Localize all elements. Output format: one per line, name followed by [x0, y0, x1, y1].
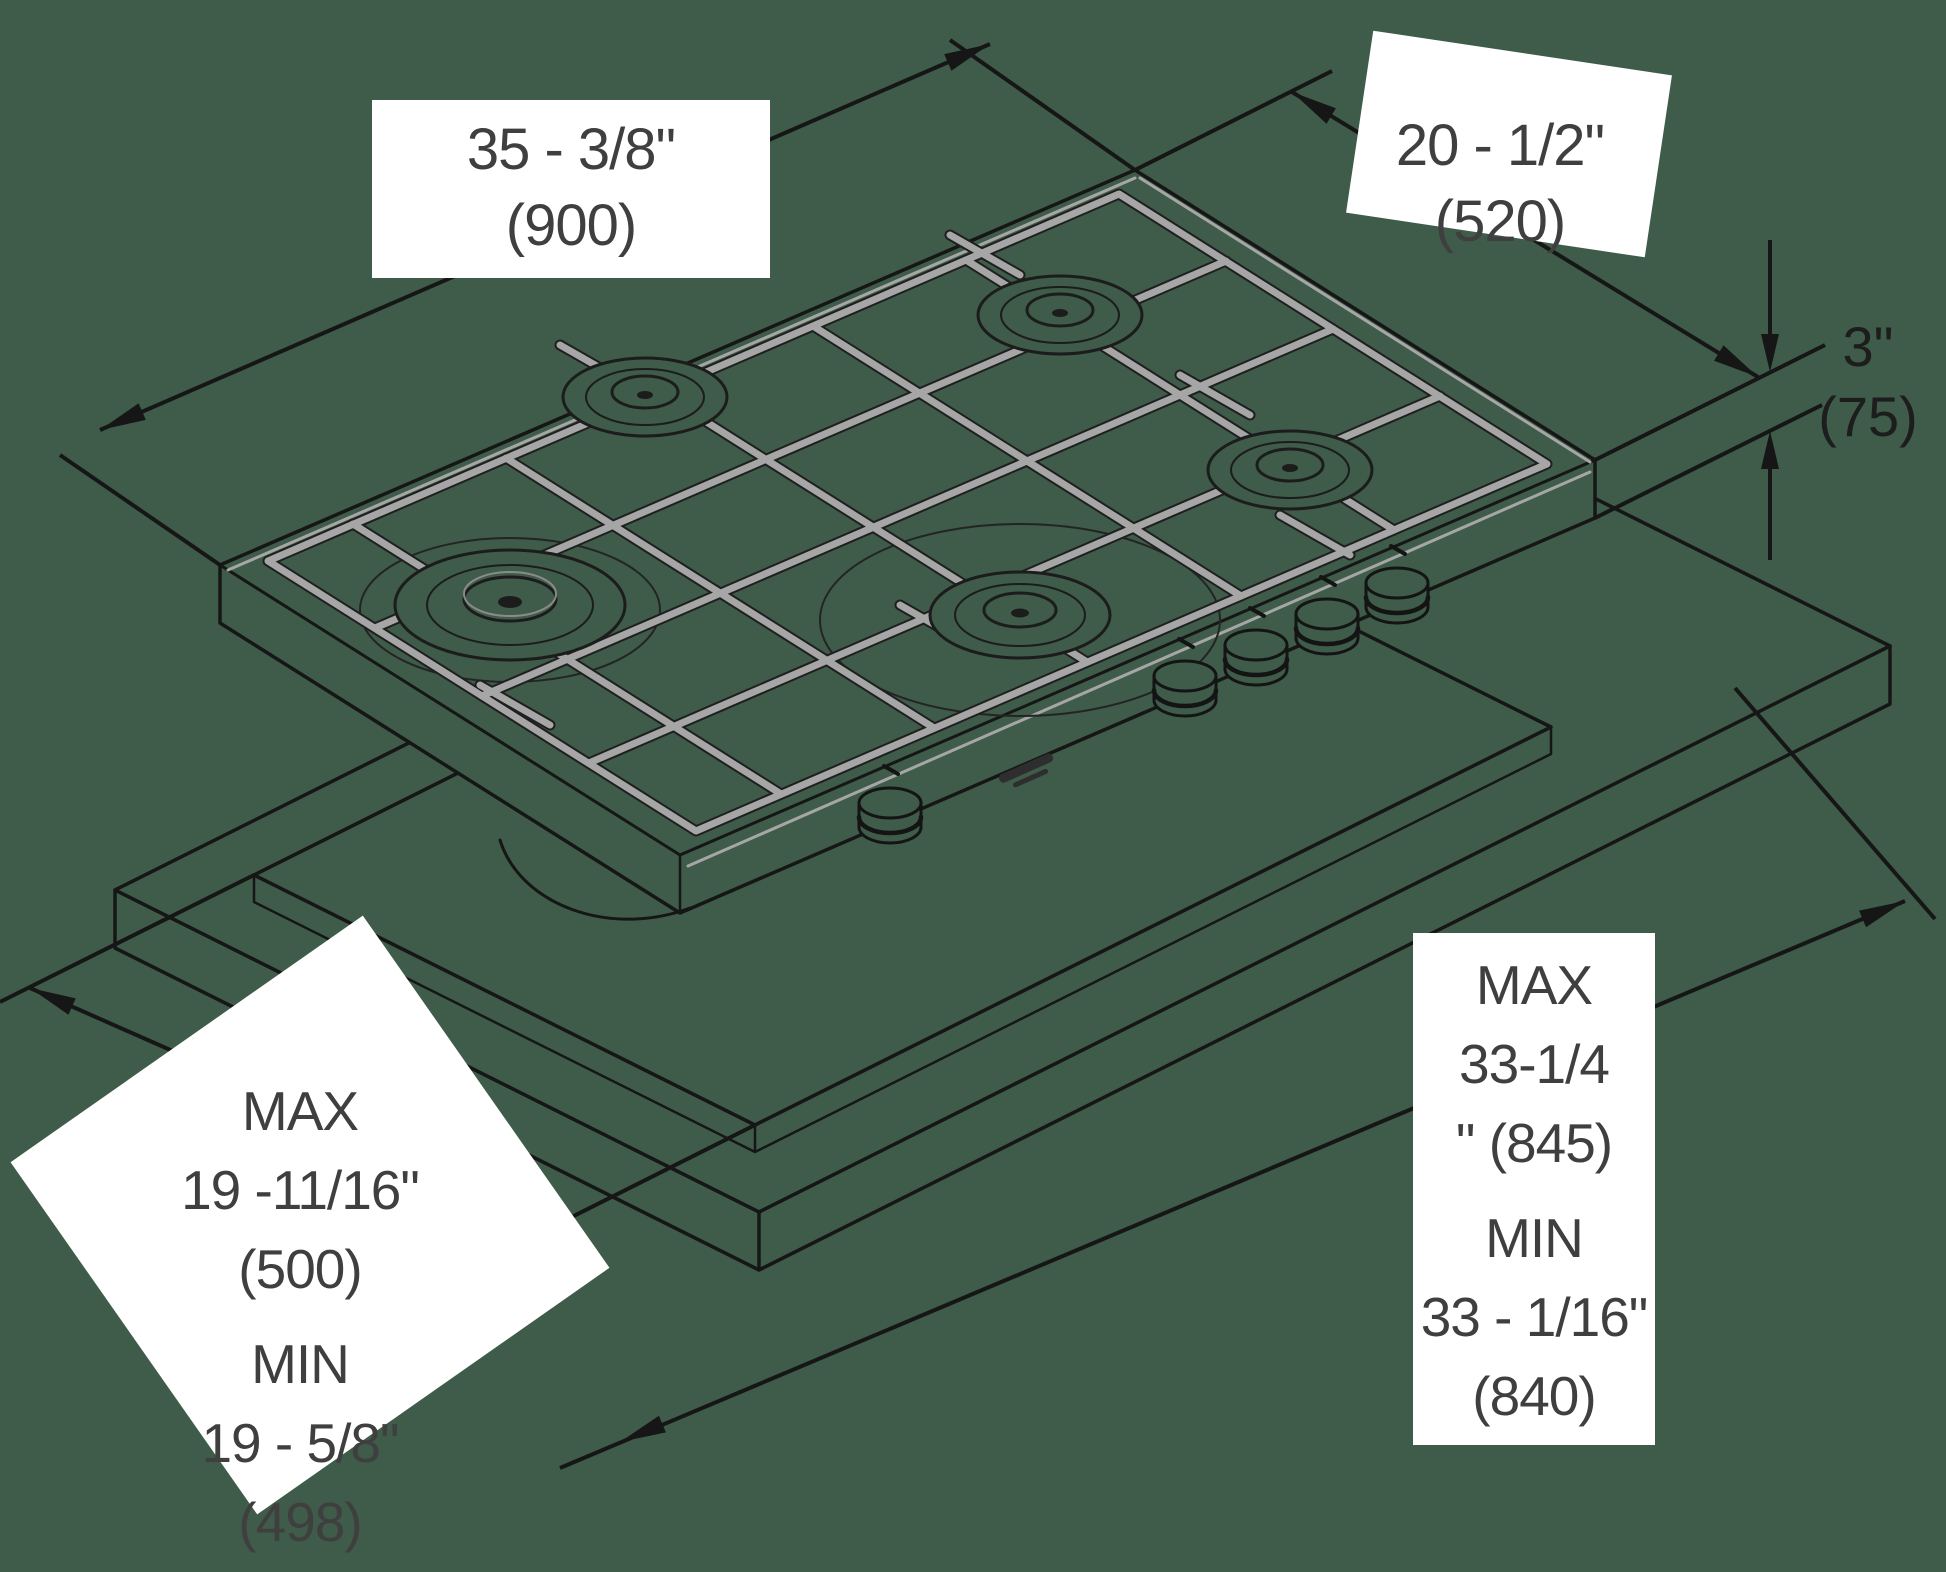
cooktop-depth-metric: (520) — [1360, 184, 1640, 260]
extension-line-right-corner-bottom — [1595, 405, 1822, 518]
burner-front-center — [930, 572, 1110, 658]
arrowhead — [100, 403, 146, 430]
cutout-width-min-value: 19 - 5/8" — [110, 1404, 490, 1483]
edge-thickness-value: 3" — [1798, 312, 1938, 382]
extension-line-left-corner — [60, 455, 220, 565]
burner-front-left — [395, 550, 625, 660]
arrowhead — [30, 988, 76, 1015]
arrowhead — [1292, 92, 1336, 124]
cutout-width-max-value: 19 -11/16" — [110, 1151, 490, 1230]
arrowhead — [1761, 431, 1779, 469]
dimension-edge-thickness — [1595, 240, 1822, 560]
cutout-length-min-metric: (840) — [1384, 1357, 1684, 1436]
burner-back-center — [978, 276, 1142, 354]
edge-thickness-metric: (75) — [1798, 382, 1938, 452]
diagram-canvas: 35 - 3/8" (900) 20 - 1/2" (520) 3" (75) … — [0, 0, 1946, 1572]
extension-line-back-corner-right — [1135, 71, 1332, 170]
cooktop-width-value: 35 - 3/8" — [372, 112, 770, 188]
burner-back-right — [1208, 431, 1372, 509]
extension-line-back-corner — [950, 40, 1135, 170]
cooktop-width-metric: (900) — [372, 188, 770, 264]
arrowhead — [1714, 345, 1758, 377]
cutout-width-max: MAX — [110, 1072, 490, 1151]
cutout-length-max-metric: " (845) — [1384, 1104, 1684, 1183]
edge-thickness-label: 3" (75) — [1798, 312, 1938, 452]
arrowhead — [944, 44, 990, 71]
extension-line-cutout-right — [1735, 688, 1935, 919]
arrowhead — [1761, 334, 1779, 372]
cutout-width-label: MAX 19 -11/16" (500) MIN 19 - 5/8" (498) — [110, 1072, 490, 1562]
arrowhead — [1859, 901, 1905, 927]
burner-back-left — [563, 358, 727, 436]
cutout-width-min: MIN — [110, 1325, 490, 1404]
cutout-length-label: MAX 33-1/4 " (845) MIN 33 - 1/16" (840) — [1384, 946, 1684, 1436]
cutout-width-min-metric: (498) — [110, 1483, 490, 1562]
arrowhead — [620, 1416, 666, 1442]
cutout-length-max: MAX — [1384, 946, 1684, 1025]
cutout-width-max-metric: (500) — [110, 1230, 490, 1309]
cutout-length-min: MIN — [1384, 1199, 1684, 1278]
cooktop-depth-label: 20 - 1/2" (520) — [1360, 108, 1640, 260]
cooktop-depth-value: 20 - 1/2" — [1360, 108, 1640, 184]
cutout-length-max-value: 33-1/4 — [1384, 1025, 1684, 1104]
cooktop-width-label: 35 - 3/8" (900) — [372, 112, 770, 264]
extension-line-right-corner-top — [1595, 345, 1825, 460]
cutout-length-min-value: 33 - 1/16" — [1384, 1278, 1684, 1357]
